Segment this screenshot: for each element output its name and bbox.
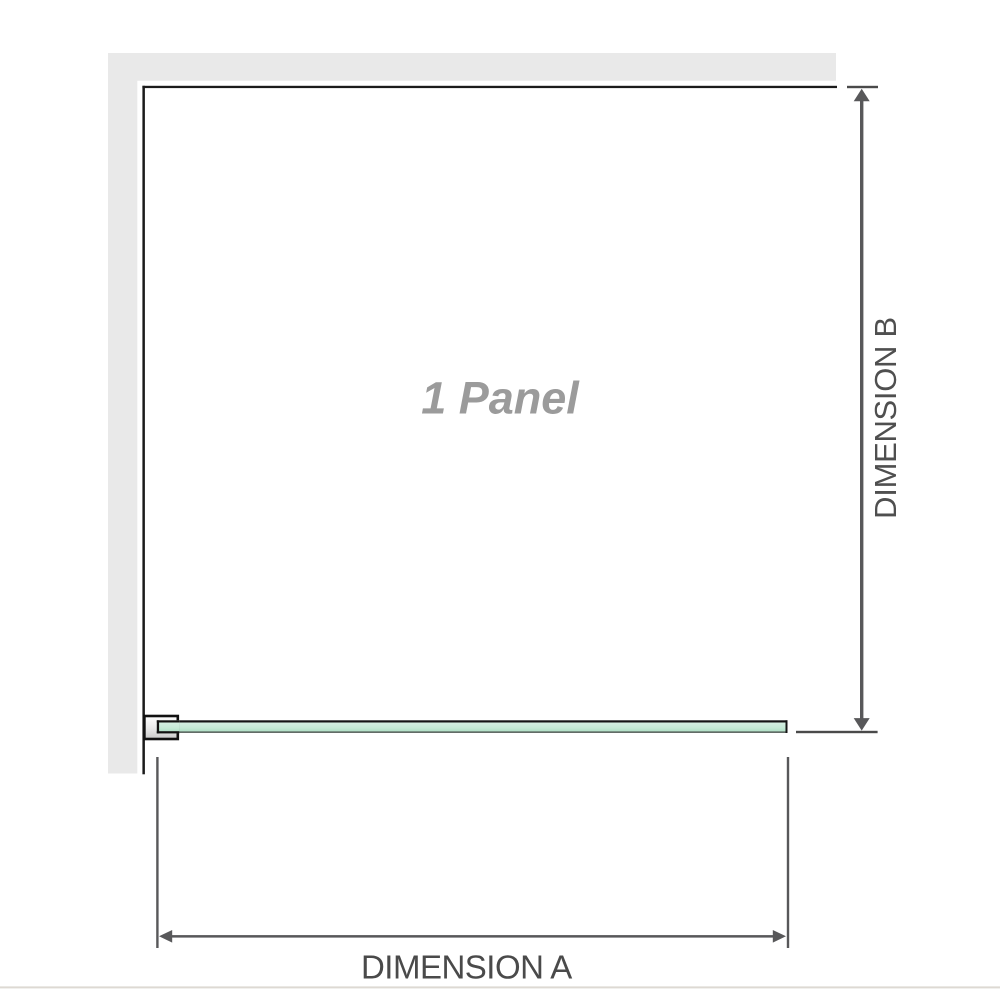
svg-text:1 Panel: 1 Panel <box>421 373 580 424</box>
svg-text:DIMENSION A: DIMENSION A <box>361 949 572 986</box>
svg-text:DIMENSION B: DIMENSION B <box>868 317 903 519</box>
